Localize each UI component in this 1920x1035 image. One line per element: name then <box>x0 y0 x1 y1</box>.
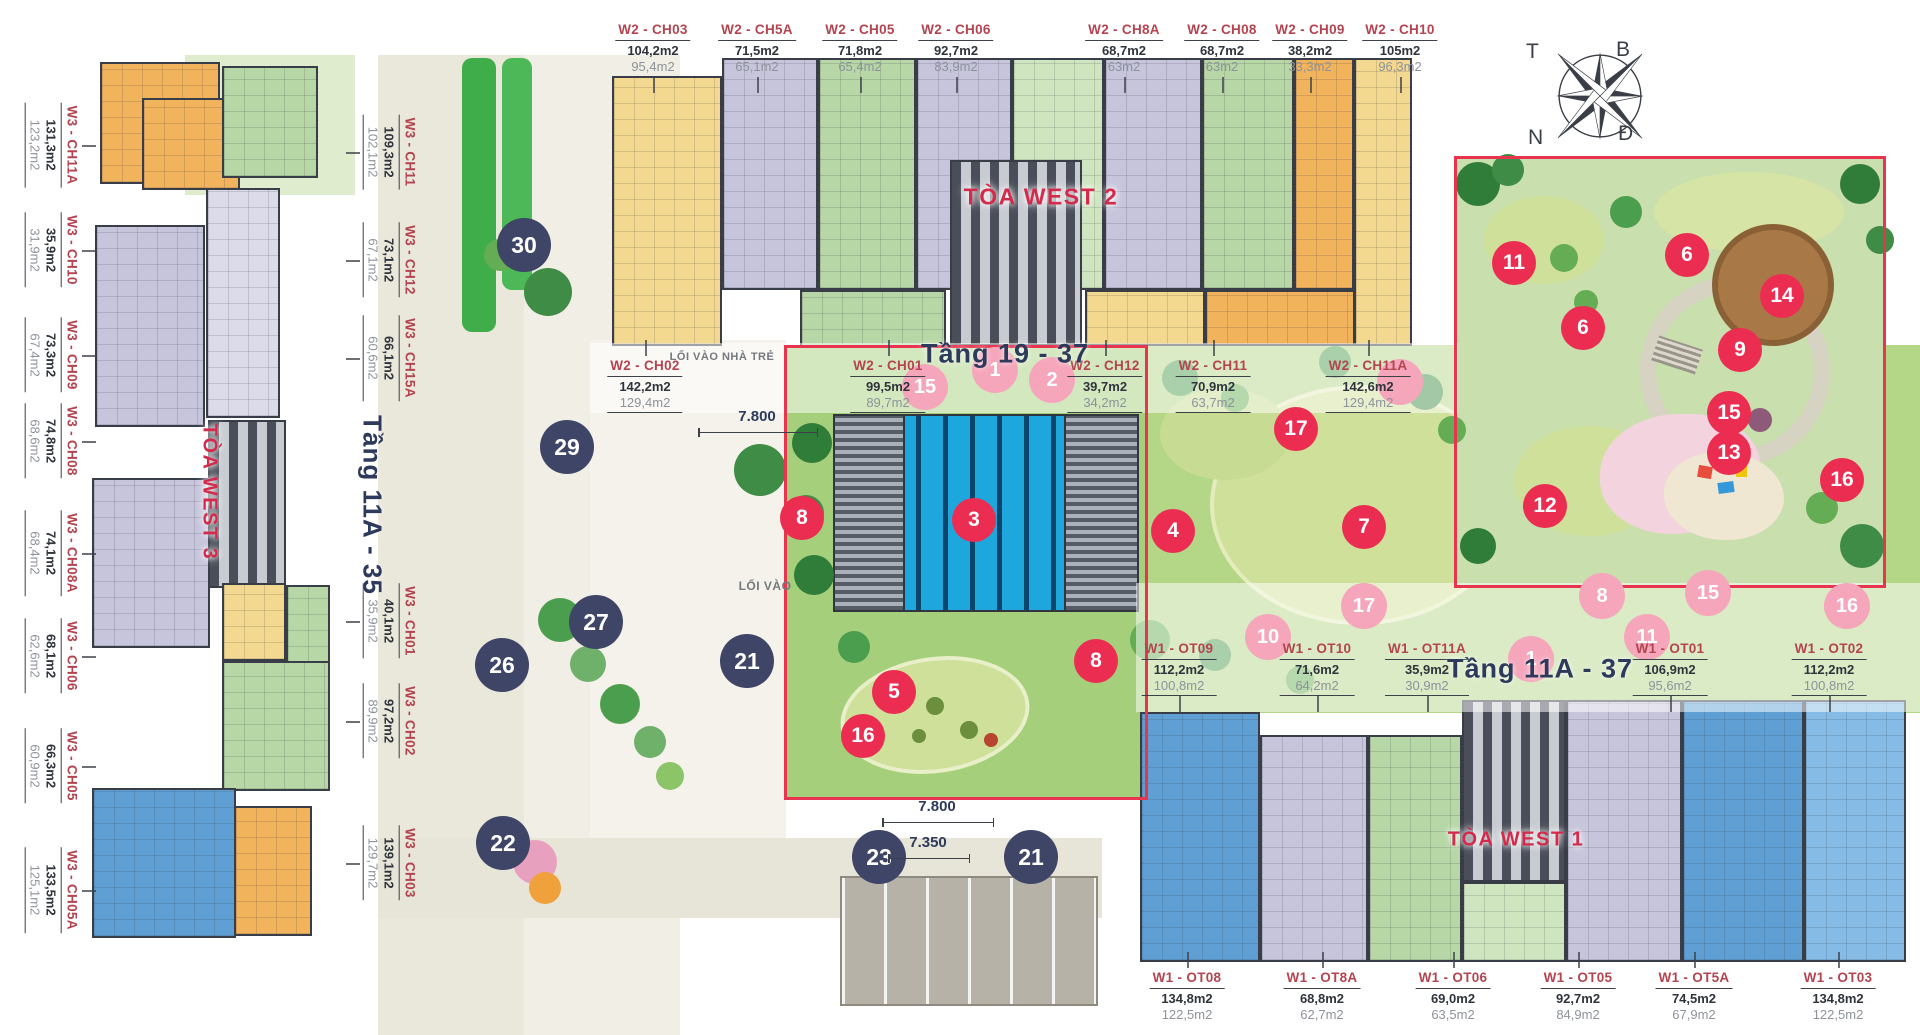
green-road-strip <box>462 58 496 332</box>
compass-rose-icon <box>1535 31 1665 161</box>
leader-line <box>1694 952 1696 968</box>
tree <box>570 646 606 682</box>
unit-area: 95,6m2 <box>1633 678 1708 696</box>
marker-red-11: 11 <box>1492 241 1536 285</box>
unit-area: 68,8m2 <box>1284 991 1361 1007</box>
marker-red-12: 12 <box>1523 484 1567 528</box>
leader-line <box>1105 340 1107 356</box>
unit-area: 73,3m2 <box>43 317 59 392</box>
leader-line <box>82 890 96 892</box>
unit-code: W2 - CH11A <box>1326 358 1411 377</box>
leader-line <box>1368 340 1370 356</box>
unit-area: 65,1m2 <box>718 59 796 75</box>
floor-range-west1: Tầng 11A - 37 <box>1447 654 1633 685</box>
building-block <box>612 76 722 346</box>
dimension-text-bottom2: 7.350 <box>909 834 947 851</box>
compass-east-label: Đ <box>1618 122 1633 146</box>
garden-zone-border <box>1454 156 1886 588</box>
unit-code: W1 - OT01 <box>1633 641 1708 660</box>
unit-label-w3-ch08: W3 - CH0874,8m268,6m2 <box>24 403 79 478</box>
unit-label-w2-ch11: W2 - CH1170,9m263,7m2 <box>1176 358 1251 413</box>
marker-red-6: 6 <box>1561 306 1605 350</box>
marker-pink-15: 15 <box>1685 570 1731 616</box>
nursery-entrance-label: LỐI VÀO NHÀ TRẺ <box>670 351 775 363</box>
unit-area: 92,7m2 <box>918 43 993 59</box>
unit-area: 122,5m2 <box>1150 1007 1225 1023</box>
unit-label-w3-ch02: W3 - CH0297,2m289,9m2 <box>362 683 417 758</box>
dimension-line-bottom1 <box>882 822 994 823</box>
leader-line <box>1222 77 1224 93</box>
unit-label-w2-ch01: W2 - CH0199,5m289,7m2 <box>850 358 925 413</box>
unit-code: W1 - OT5A <box>1656 970 1733 989</box>
unit-label-w3-ch12: W3 - CH1273,1m267,1m2 <box>362 222 417 297</box>
unit-code: W1 - OT02 <box>1792 641 1867 660</box>
unit-label-w3-ch15a: W3 - CH15A66,1m260,6m2 <box>362 315 417 401</box>
unit-area: 89,7m2 <box>850 395 925 413</box>
unit-area: 60,9m2 <box>24 728 42 803</box>
unit-label-w2-ch05: W2 - CH0571,8m265,4m2 <box>822 22 897 75</box>
unit-code: W1 - OT08 <box>1150 970 1225 989</box>
unit-area: 129,4m2 <box>1326 395 1411 413</box>
unit-label-w1-ot05: W1 - OT0592,7m284,9m2 <box>1541 970 1616 1023</box>
leader-line <box>82 145 96 147</box>
dimension-line-bottom2 <box>888 858 970 859</box>
unit-area: 134,8m2 <box>1801 991 1876 1007</box>
leader-line <box>1179 696 1181 712</box>
marker-red-3: 3 <box>952 498 996 542</box>
unit-label-w2-ch09: W2 - CH0938,2m233,3m2 <box>1272 22 1347 75</box>
unit-area: 112,2m2 <box>1142 662 1217 678</box>
marker-navy-23: 23 <box>852 830 906 884</box>
unit-area: 68,6m2 <box>24 403 42 478</box>
leader-line <box>1310 77 1312 93</box>
unit-code: W1 - OT05 <box>1541 970 1616 989</box>
unit-label-w2-ch02: W2 - CH02142,2m2129,4m2 <box>607 358 682 413</box>
unit-label-w1-ot01: W1 - OT01106,9m295,6m2 <box>1633 641 1708 696</box>
leader-line <box>1187 952 1189 968</box>
unit-code: W2 - CH01 <box>850 358 925 377</box>
unit-area: 142,6m2 <box>1326 379 1411 395</box>
unit-area: 68,1m2 <box>43 618 59 693</box>
unit-label-w1-ot02: W1 - OT02112,2m2100,8m2 <box>1792 641 1867 696</box>
unit-area: 139,1m2 <box>381 825 397 900</box>
unit-label-w3-ch03: W3 - CH03139,1m2129,7m2 <box>362 825 417 900</box>
unit-label-w1-ot03: W1 - OT03134,8m2122,5m2 <box>1801 970 1876 1023</box>
unit-area: 123,2m2 <box>24 103 42 188</box>
building-block <box>1104 58 1202 290</box>
unit-area: 97,2m2 <box>381 683 397 758</box>
unit-area: 34,2m2 <box>1067 395 1142 413</box>
leader-line <box>1322 952 1324 968</box>
unit-area: 131,3m2 <box>43 103 59 188</box>
unit-area: 142,2m2 <box>607 379 682 395</box>
building-block <box>222 661 330 791</box>
leader-line <box>82 656 96 658</box>
unit-label-w1-ot10: W1 - OT1071,6m264,2m2 <box>1280 641 1355 696</box>
building-block <box>222 66 318 178</box>
unit-area: 69,0m2 <box>1416 991 1491 1007</box>
unit-area: 102,1m2 <box>362 115 380 190</box>
unit-label-w3-ch08a: W3 - CH08A74,1m268,4m2 <box>24 510 79 596</box>
unit-code: W2 - CH8A <box>1085 22 1163 41</box>
tower-title-west2: TÒA WEST 2 <box>964 184 1119 211</box>
unit-code: W3 - CH01 <box>399 583 418 658</box>
unit-area: 84,9m2 <box>1541 1007 1616 1023</box>
unit-area: 62,7m2 <box>1284 1007 1361 1023</box>
leader-line <box>1829 696 1831 712</box>
unit-code: W1 - OT09 <box>1142 641 1217 660</box>
tower-title-west1: TÒA WEST 1 <box>1448 829 1584 852</box>
leader-line <box>956 77 958 93</box>
tree <box>600 684 640 724</box>
unit-area: 68,4m2 <box>24 510 42 596</box>
unit-label-w2-ch03: W2 - CH03104,2m295,4m2 <box>615 22 690 75</box>
unit-area: 62,6m2 <box>24 618 42 693</box>
leader-line <box>82 766 96 768</box>
building-block <box>1202 58 1294 290</box>
compass-north-label: B <box>1616 38 1630 62</box>
unit-code: W2 - CH11 <box>1176 358 1251 377</box>
leader-line <box>1453 952 1455 968</box>
compass-south-label: N <box>1528 126 1543 150</box>
marker-red-9: 9 <box>1718 328 1762 372</box>
building-block <box>206 188 280 418</box>
unit-area: 74,1m2 <box>43 510 59 596</box>
building-block <box>92 788 236 938</box>
unit-label-w2-ch11a: W2 - CH11A142,6m2129,4m2 <box>1326 358 1411 413</box>
building-core <box>1462 700 1566 882</box>
unit-code: W1 - OT8A <box>1284 970 1361 989</box>
unit-area: 125,1m2 <box>24 847 42 933</box>
unit-area: 31,9m2 <box>24 212 42 287</box>
building-block <box>234 806 312 936</box>
marker-navy-22: 22 <box>476 816 530 870</box>
leader-line <box>82 441 96 443</box>
leader-line <box>653 77 655 93</box>
unit-area: 133,5m2 <box>43 847 59 933</box>
marker-red-16: 16 <box>841 714 885 758</box>
building-block <box>95 225 205 427</box>
compass-west-label: T <box>1526 40 1539 64</box>
building-block <box>818 58 916 290</box>
building-block <box>1462 882 1566 962</box>
unit-area: 89,9m2 <box>362 683 380 758</box>
tree-orange <box>529 872 561 904</box>
unit-area: 68,7m2 <box>1085 43 1163 59</box>
unit-area: 35,9m2 <box>43 212 59 287</box>
leader-line <box>1578 952 1580 968</box>
unit-area: 63,7m2 <box>1176 395 1251 413</box>
tree <box>656 762 684 790</box>
unit-area: 74,8m2 <box>43 403 59 478</box>
unit-area: 100,8m2 <box>1142 678 1217 696</box>
building-block <box>1804 700 1906 962</box>
marker-navy-29: 29 <box>540 420 594 474</box>
floor-range-west2: Tầng 19 - 37 <box>921 339 1089 370</box>
unit-area: 129,7m2 <box>362 825 380 900</box>
marker-red-8: 8 <box>780 496 824 540</box>
leader-line <box>346 260 360 262</box>
unit-code: W3 - CH09 <box>61 317 80 392</box>
building-block <box>222 583 286 661</box>
marker-red-8: 8 <box>1074 639 1118 683</box>
unit-label-w3-ch05a: W3 - CH05A133,5m2125,1m2 <box>24 847 79 933</box>
leader-line <box>1124 77 1126 93</box>
leader-line <box>860 77 862 93</box>
unit-area: 96,3m2 <box>1362 59 1437 75</box>
unit-label-w1-ot06: W1 - OT0669,0m263,5m2 <box>1416 970 1491 1023</box>
leader-line <box>888 340 890 356</box>
unit-label-w2-ch5a: W2 - CH5A71,5m265,1m2 <box>718 22 796 75</box>
unit-label-w3-ch11: W3 - CH11109,3m2102,1m2 <box>362 115 417 190</box>
unit-code: W3 - CH03 <box>399 825 418 900</box>
unit-area: 66,3m2 <box>43 728 59 803</box>
unit-label-w2-ch8a: W2 - CH8A68,7m263m2 <box>1085 22 1163 75</box>
leader-line <box>1670 696 1672 712</box>
unit-area: 71,8m2 <box>822 43 897 59</box>
unit-code: W3 - CH10 <box>61 212 80 287</box>
building-block <box>1354 58 1412 346</box>
building-block <box>1085 290 1205 346</box>
unit-label-w3-ch09: W3 - CH0973,3m267,4m2 <box>24 317 79 392</box>
unit-area: 104,2m2 <box>615 43 690 59</box>
unit-code: W2 - CH09 <box>1272 22 1347 41</box>
leader-line <box>1213 340 1215 356</box>
unit-area: 67,9m2 <box>1656 1007 1733 1023</box>
leader-line <box>1427 696 1429 712</box>
leader-line <box>1838 952 1840 968</box>
unit-area: 38,2m2 <box>1272 43 1347 59</box>
marker-navy-21: 21 <box>720 634 774 688</box>
tree <box>524 268 572 316</box>
unit-label-w3-ch06: W3 - CH0668,1m262,6m2 <box>24 618 79 693</box>
tree <box>634 726 666 758</box>
leader-line <box>645 340 647 356</box>
unit-code: W2 - CH03 <box>615 22 690 41</box>
leader-line <box>757 77 759 93</box>
unit-area: 92,7m2 <box>1541 991 1616 1007</box>
tree <box>734 444 786 496</box>
unit-area: 95,4m2 <box>615 59 690 75</box>
unit-area: 100,8m2 <box>1792 678 1867 696</box>
unit-area: 63m2 <box>1085 59 1163 75</box>
unit-area: 105m2 <box>1362 43 1437 59</box>
unit-label-w1-ot08: W1 - OT08134,8m2122,5m2 <box>1150 970 1225 1023</box>
unit-area: 39,7m2 <box>1067 379 1142 395</box>
unit-area: 63m2 <box>1184 59 1259 75</box>
unit-area: 68,7m2 <box>1184 43 1259 59</box>
marker-red-14: 14 <box>1760 274 1804 318</box>
unit-code: W2 - CH05 <box>822 22 897 41</box>
unit-label-w3-ch05: W3 - CH0566,3m260,9m2 <box>24 728 79 803</box>
leader-line <box>346 152 360 154</box>
building-block <box>1682 700 1804 962</box>
marker-red-15: 15 <box>1707 391 1751 435</box>
unit-area: 73,1m2 <box>381 222 397 297</box>
unit-code: W3 - CH05A <box>61 847 80 933</box>
unit-code: W3 - CH08A <box>61 510 80 596</box>
marker-navy-26: 26 <box>475 638 529 692</box>
marker-pink-17: 17 <box>1341 583 1387 629</box>
unit-area: 83,9m2 <box>918 59 993 75</box>
leader-line <box>346 721 360 723</box>
dimension-line-top <box>698 432 818 433</box>
building-block <box>1140 712 1260 962</box>
leader-line <box>82 355 96 357</box>
unit-code: W3 - CH02 <box>399 683 418 758</box>
building-block <box>92 478 210 648</box>
unit-label-w3-ch11a: W3 - CH11A131,3m2123,2m2 <box>24 103 79 188</box>
unit-label-w3-ch10: W3 - CH1035,9m231,9m2 <box>24 212 79 287</box>
marker-red-17: 17 <box>1274 407 1318 451</box>
marker-navy-21: 21 <box>1004 830 1058 884</box>
unit-code: W2 - CH10 <box>1362 22 1437 41</box>
marker-pink-8: 8 <box>1579 573 1625 619</box>
unit-label-w2-ch10: W2 - CH10105m296,3m2 <box>1362 22 1437 75</box>
unit-area: 112,2m2 <box>1792 662 1867 678</box>
leader-line <box>82 553 96 555</box>
unit-area: 60,6m2 <box>362 315 380 401</box>
tower-title-west3: TÒA WEST 3 <box>198 424 221 560</box>
unit-code: W2 - CH06 <box>918 22 993 41</box>
unit-area: 122,5m2 <box>1801 1007 1876 1023</box>
unit-area: 64,2m2 <box>1280 678 1355 696</box>
marker-red-5: 5 <box>872 670 916 714</box>
unit-area: 66,1m2 <box>381 315 397 401</box>
unit-area: 33,3m2 <box>1272 59 1347 75</box>
unit-code: W3 - CH06 <box>61 618 80 693</box>
unit-area: 63,5m2 <box>1416 1007 1491 1023</box>
leader-line <box>1400 77 1402 93</box>
unit-code: W3 - CH11 <box>399 115 418 190</box>
unit-area: 99,5m2 <box>850 379 925 395</box>
unit-area: 106,9m2 <box>1633 662 1708 678</box>
dimension-text-top: 7.800 <box>738 408 776 425</box>
leader-line <box>346 863 360 865</box>
unit-area: 71,5m2 <box>718 43 796 59</box>
unit-code: W1 - OT03 <box>1801 970 1876 989</box>
unit-code: W3 - CH05 <box>61 728 80 803</box>
unit-code: W3 - CH15A <box>399 315 418 401</box>
unit-code: W2 - CH08 <box>1184 22 1259 41</box>
unit-area: 70,9m2 <box>1176 379 1251 395</box>
unit-label-w1-ot5a: W1 - OT5A74,5m267,9m2 <box>1656 970 1733 1023</box>
unit-area: 109,3m2 <box>381 115 397 190</box>
unit-code: W1 - OT10 <box>1280 641 1355 660</box>
unit-label-w2-ch08: W2 - CH0868,7m263m2 <box>1184 22 1259 75</box>
leader-line <box>346 621 360 623</box>
unit-code: W2 - CH5A <box>718 22 796 41</box>
building-block <box>722 58 818 290</box>
unit-code: W3 - CH08 <box>61 403 80 478</box>
leader-line <box>346 358 360 360</box>
unit-label-w1-ot09: W1 - OT09112,2m2100,8m2 <box>1142 641 1217 696</box>
building-block <box>1205 290 1355 346</box>
site-plan-canvas: 3029272621222321116146915131612177438851… <box>0 0 1920 1035</box>
unit-label-w1-ot8a: W1 - OT8A68,8m262,7m2 <box>1284 970 1361 1023</box>
unit-area: 74,5m2 <box>1656 991 1733 1007</box>
leader-line <box>1317 696 1319 712</box>
marker-pink-16: 16 <box>1824 583 1870 629</box>
building-block <box>1260 735 1368 962</box>
marker-red-4: 4 <box>1151 509 1195 553</box>
marker-navy-27: 27 <box>569 595 623 649</box>
unit-code: W3 - CH12 <box>399 222 418 297</box>
marker-red-16: 16 <box>1820 458 1864 502</box>
dimension-text-bottom1: 7.800 <box>918 798 956 815</box>
unit-area: 67,4m2 <box>24 317 42 392</box>
building-block <box>1294 58 1354 290</box>
floor-range-west3: Tầng 11A - 35 <box>357 415 388 595</box>
entrance-label: LỐI VÀO <box>739 579 792 593</box>
marker-navy-30: 30 <box>497 218 551 272</box>
unit-area: 65,4m2 <box>822 59 897 75</box>
marker-red-13: 13 <box>1707 431 1751 475</box>
unit-code: W1 - OT06 <box>1416 970 1491 989</box>
parking-lot <box>840 876 1098 1006</box>
unit-code: W3 - CH11A <box>61 103 80 188</box>
marker-red-7: 7 <box>1342 505 1386 549</box>
unit-area: 134,8m2 <box>1150 991 1225 1007</box>
unit-area: 67,1m2 <box>362 222 380 297</box>
unit-label-w2-ch06: W2 - CH0692,7m283,9m2 <box>918 22 993 75</box>
leader-line <box>82 250 96 252</box>
unit-area: 71,6m2 <box>1280 662 1355 678</box>
unit-area: 129,4m2 <box>607 395 682 413</box>
marker-red-6: 6 <box>1665 233 1709 277</box>
